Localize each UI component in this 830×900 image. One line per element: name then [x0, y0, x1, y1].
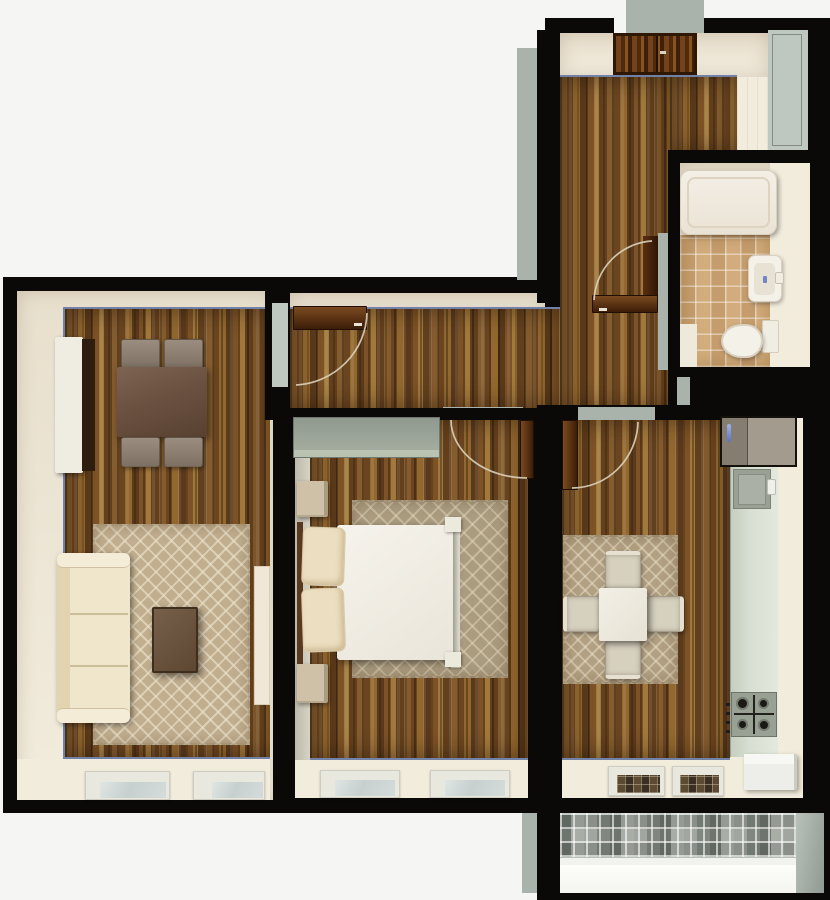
- stove-knobs: [726, 697, 730, 733]
- kitchen-table: [599, 588, 647, 641]
- tv-stand: [55, 337, 83, 473]
- bathtub: [680, 170, 777, 235]
- bedroom-door-leaf: [520, 420, 534, 479]
- bedroom-wardrobe: [293, 417, 440, 458]
- dining-table: [117, 367, 207, 437]
- gas-stove: [731, 692, 777, 737]
- bath-mat: [680, 324, 697, 367]
- balcony-ledge: [560, 857, 803, 865]
- toilet-bowl: [721, 324, 763, 358]
- coffee-table-top: [154, 609, 196, 671]
- entry-east-wall-black: [808, 18, 830, 165]
- kitchen-doorway-lintel: [578, 407, 655, 420]
- window-glass-grid: [680, 775, 719, 793]
- living-room-window: [85, 771, 170, 800]
- window-glass: [212, 782, 263, 798]
- stove-burner: [758, 698, 769, 709]
- entry-nook-floor: [670, 75, 737, 152]
- bedroom-window: [320, 770, 400, 798]
- bathroom-door-jamb: [643, 236, 658, 298]
- entry-door-divider: [656, 36, 658, 72]
- door-handle: [354, 323, 362, 326]
- nightstand: [297, 664, 328, 703]
- hall-west-wall: [537, 30, 560, 303]
- pillow: [301, 526, 346, 586]
- kitchen-chair: [605, 640, 641, 679]
- living-room-door-leaf: [293, 306, 367, 330]
- kitchen-sink: [733, 469, 771, 509]
- sofa-armrest: [57, 553, 130, 568]
- window-glass: [445, 780, 505, 796]
- kitchen-door-leaf: [562, 420, 578, 490]
- nightstand: [297, 481, 328, 517]
- tv-stand-dark-shelf: [82, 339, 95, 471]
- refrigerator: [720, 416, 797, 467]
- sofa-cushion-seam: [70, 613, 128, 615]
- washbasin: [748, 255, 782, 302]
- entry-door: [613, 33, 697, 75]
- kitchen-window: [672, 766, 724, 796]
- kitchen-window: [608, 766, 665, 796]
- hall-exterior-face: [517, 48, 537, 280]
- sink-faucet: [767, 479, 776, 495]
- window-glass-grid: [617, 775, 660, 793]
- entry-east-wall: [737, 77, 768, 152]
- sofa-cushion-seam: [70, 665, 128, 667]
- balcony-west-face: [522, 813, 537, 893]
- bed-corner-post: [445, 652, 461, 667]
- window-glass: [335, 780, 395, 796]
- dining-chair: [121, 339, 160, 369]
- kitchen-chair: [646, 596, 684, 632]
- sink-basin: [738, 474, 766, 505]
- bathtub-inner-rim: [687, 177, 770, 228]
- washbasin-faucet: [775, 272, 784, 284]
- balcony-mosaic-parapet: [560, 813, 803, 857]
- wall-connector-face: [677, 377, 690, 407]
- bed-mattress: [337, 525, 453, 660]
- cabinet-top-face: [744, 754, 794, 764]
- balcony-east-face: [796, 813, 824, 893]
- sofa-armrest: [57, 708, 130, 723]
- dining-chair: [121, 437, 160, 467]
- side-cabinet: [254, 566, 270, 705]
- dining-chair: [164, 437, 203, 467]
- sofa-backrest: [57, 553, 70, 723]
- door-handle: [660, 51, 666, 54]
- toilet-tank: [762, 320, 779, 353]
- stove-burner: [736, 697, 749, 710]
- pillow: [301, 587, 346, 652]
- dining-chair: [164, 339, 203, 369]
- entry-closet: [768, 30, 808, 152]
- coffee-table: [152, 607, 198, 673]
- bed-corner-post: [445, 517, 461, 532]
- soap-dispenser: [763, 276, 767, 283]
- exterior-face-above-door: [626, 0, 704, 33]
- kitchen-chair: [605, 551, 641, 589]
- refrigerator-door: [722, 418, 748, 465]
- wardrobe-front-edge: [294, 450, 439, 457]
- stove-grate-line: [734, 713, 774, 715]
- stove-burner: [737, 719, 748, 730]
- living-room-window: [193, 771, 265, 800]
- floorplan-canvas: [0, 0, 830, 900]
- sofa: [57, 553, 130, 723]
- living-room-doorway: [272, 303, 288, 387]
- kitchen-white-cabinet: [744, 754, 797, 790]
- stove-burner: [758, 719, 770, 731]
- kitchen-chair: [563, 596, 600, 632]
- bedroom-window: [430, 770, 510, 798]
- window-glass: [100, 782, 166, 798]
- balcony-floor: [560, 865, 803, 893]
- entry-closet-door-outline: [772, 34, 802, 146]
- door-handle: [599, 308, 607, 311]
- bathroom-door-leaf: [592, 295, 658, 313]
- refrigerator-led: [727, 424, 731, 442]
